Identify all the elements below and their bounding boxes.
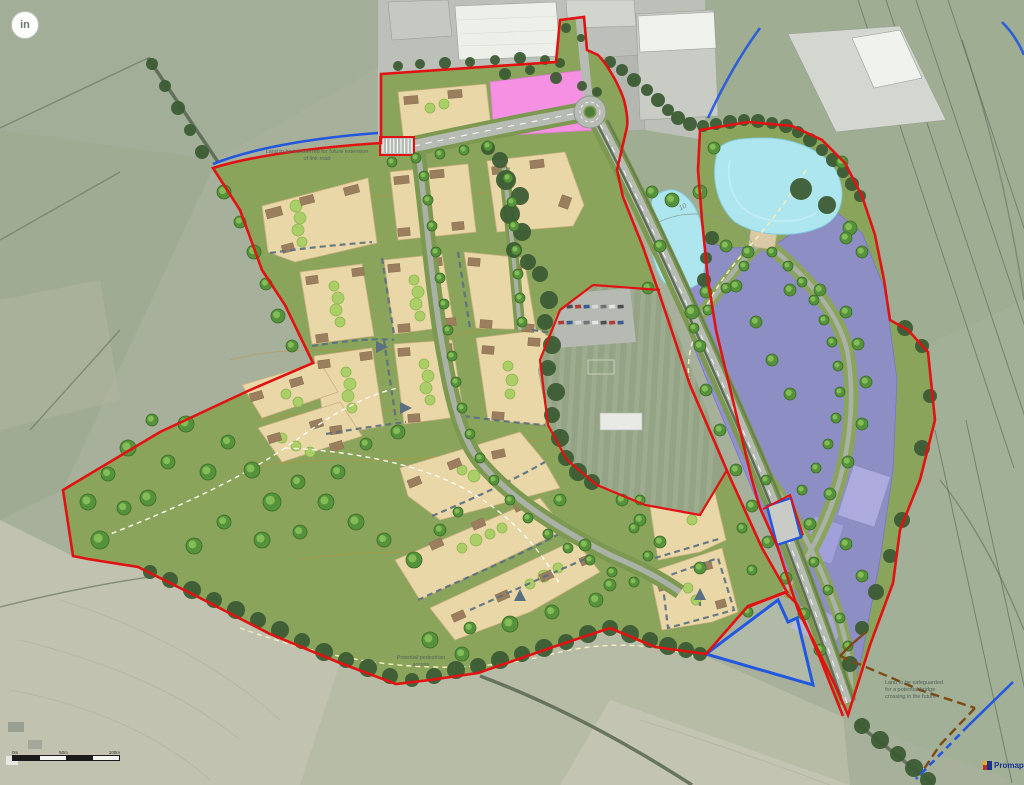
scale-bar: 0m 50m 100m xyxy=(12,750,120,761)
parking-stub xyxy=(380,137,414,155)
in-badge: in xyxy=(11,11,39,39)
masterplan-map[interactable]: in Land to be transferred for future ext… xyxy=(0,0,1024,785)
scale-label-100: 100m xyxy=(109,750,120,755)
promap-logo: Promap xyxy=(983,761,1024,770)
promap-icon xyxy=(983,761,992,770)
promap-logo-text: Promap xyxy=(994,761,1024,770)
roundabout xyxy=(574,96,606,128)
scale-label-0: 0m xyxy=(12,750,18,755)
in-badge-text: in xyxy=(20,19,30,31)
site-plan-graphic xyxy=(0,0,1024,785)
scale-bar-segments xyxy=(12,755,120,761)
scale-label-50: 50m xyxy=(59,750,68,755)
